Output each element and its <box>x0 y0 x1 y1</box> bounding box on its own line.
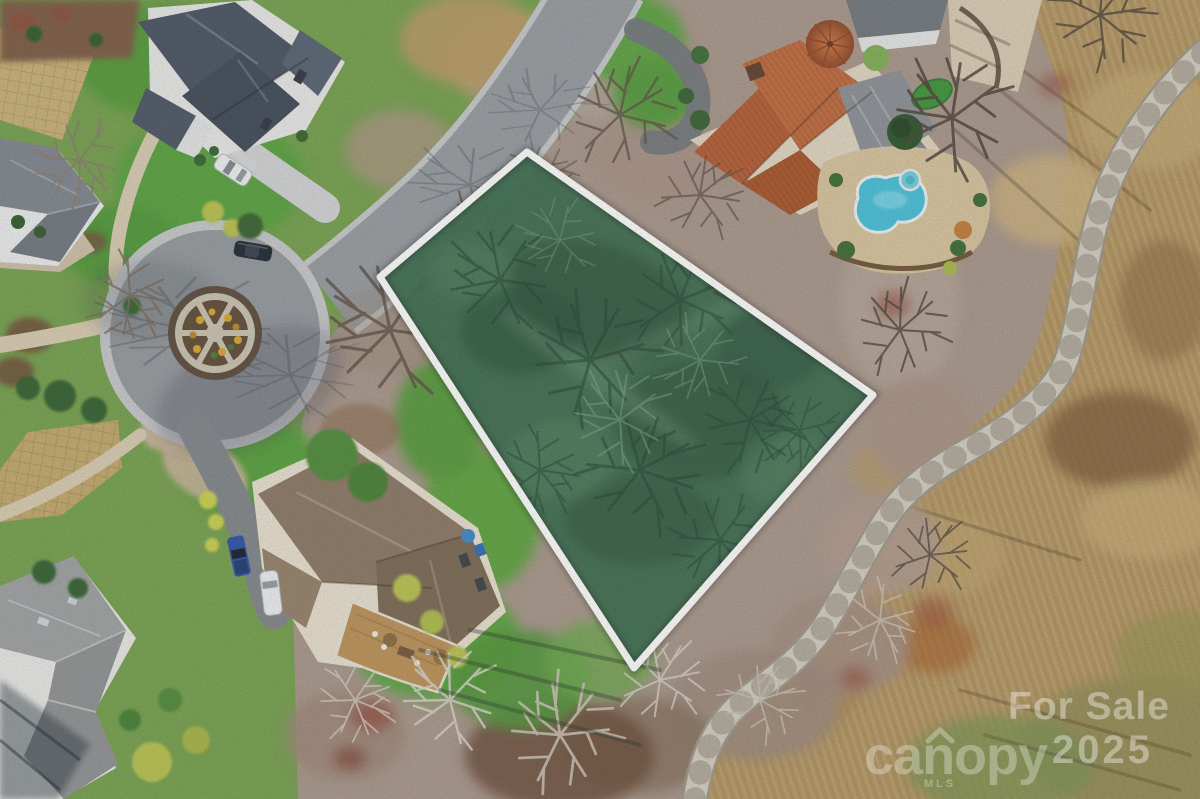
grain-overlay-light <box>0 0 1200 799</box>
aerial-photo: For Sale 2025 canopy MLS <box>0 0 1200 799</box>
watermark-brand-sub: MLS <box>924 778 956 790</box>
watermark-year: 2025 <box>1052 728 1153 772</box>
watermark-brand: canopy <box>864 726 1048 786</box>
aerial-photo-stage: For Sale 2025 canopy MLS <box>0 0 1200 799</box>
watermark-for-sale: For Sale <box>1008 685 1170 728</box>
